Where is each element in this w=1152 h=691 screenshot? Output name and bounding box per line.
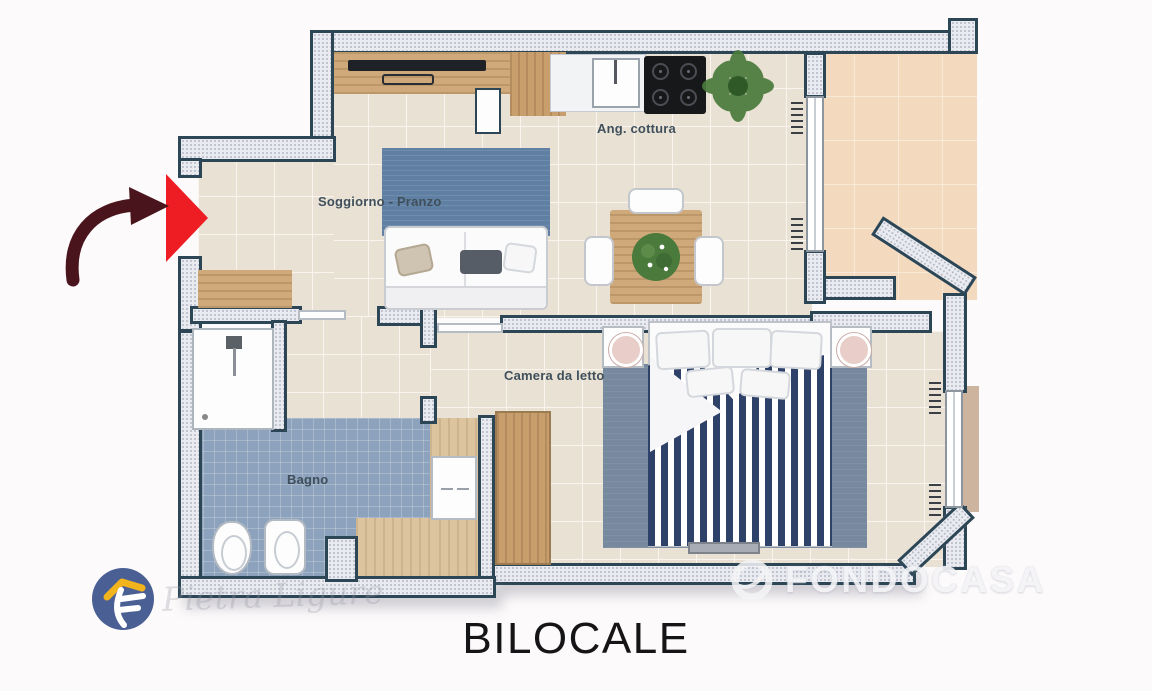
plan-title: BILOCALE xyxy=(0,614,1152,664)
dining-chair xyxy=(628,188,684,214)
curtain-icon xyxy=(791,98,803,134)
wall-hall-stub-bottom xyxy=(420,396,437,424)
tv-icon xyxy=(348,60,486,71)
shower-drain-icon xyxy=(202,414,208,420)
soundbar-icon xyxy=(382,74,434,85)
toilet-bowl xyxy=(221,535,247,571)
fondocasa-text: FONDOCASA xyxy=(785,559,1046,601)
wall-top-notch xyxy=(948,18,978,54)
wall-hall-stub-top xyxy=(420,306,437,348)
bed-pillow xyxy=(655,330,711,371)
wall-right-top xyxy=(943,293,967,393)
bedroom-label: Camera da letto xyxy=(504,368,605,383)
wall-topleft-vertical xyxy=(310,30,334,150)
hall-door-leaf xyxy=(298,310,346,320)
bath-sink-cabinet xyxy=(431,456,477,520)
entry-sideboard xyxy=(198,270,292,308)
table-plant-icon xyxy=(630,231,682,283)
entrance-arrow-icon xyxy=(55,180,175,288)
sofa-pillow xyxy=(502,242,538,274)
bed-bench xyxy=(688,542,760,554)
bedroom-door-leaf xyxy=(437,323,503,333)
wardrobe xyxy=(495,411,551,565)
sofa-backrest xyxy=(386,286,546,308)
balcony-window-door xyxy=(806,96,824,252)
wall-annex-bedroom xyxy=(478,415,495,580)
nightstand xyxy=(602,326,644,368)
curtain-icon xyxy=(929,480,941,516)
inner-hall-floor xyxy=(285,316,435,422)
bidet xyxy=(264,519,306,575)
bed-pillow xyxy=(739,368,791,400)
bedroom-window xyxy=(945,390,963,508)
shower xyxy=(192,328,274,430)
nightstand xyxy=(830,326,872,368)
plant-icon xyxy=(702,48,774,124)
cabinet-handle-icon xyxy=(457,488,469,490)
bathroom-label: Bagno xyxy=(287,472,328,487)
lamp-icon xyxy=(837,333,871,367)
bed-pillow xyxy=(712,328,772,368)
structural-pillar xyxy=(475,88,501,134)
wall-balcony-living-top xyxy=(804,52,826,98)
lamp-icon xyxy=(609,333,643,367)
burner-icon xyxy=(652,89,669,106)
cooktop xyxy=(644,56,706,114)
dining-chair xyxy=(694,236,724,286)
curtain-icon xyxy=(791,214,803,250)
script-watermark: Pietra Ligure xyxy=(161,572,384,619)
bidet-basin xyxy=(274,531,300,569)
shower-arm-icon xyxy=(233,348,236,376)
kitchen-label: Ang. cottura xyxy=(597,121,676,136)
bed-pillow xyxy=(769,330,823,371)
dining-chair xyxy=(584,236,614,286)
fondocasa-watermark: FONDOCASA xyxy=(728,556,1046,604)
curtain-icon xyxy=(929,378,941,414)
burner-icon xyxy=(652,63,669,80)
wall-top xyxy=(310,30,978,54)
fondocasa-ring-icon xyxy=(728,556,776,604)
living-room-label: Soggiorno - Pranzo xyxy=(318,194,441,209)
sofa-rug xyxy=(382,148,550,236)
faucet-icon xyxy=(614,60,617,84)
wall-balcony-living-bottom xyxy=(804,250,826,304)
toilet xyxy=(212,521,252,575)
burner-icon xyxy=(680,63,697,80)
bed-pillow xyxy=(685,366,736,399)
sofa-cushion-gray xyxy=(460,250,502,274)
bedroom-window-sill xyxy=(961,386,979,512)
bath-annex-wood-floor2 xyxy=(356,518,432,580)
cabinet-handle-icon xyxy=(441,488,453,490)
floor-plan-image: Soggiorno - Pranzo Ang. cottura Camera d… xyxy=(0,0,1152,691)
burner-icon xyxy=(680,89,697,106)
